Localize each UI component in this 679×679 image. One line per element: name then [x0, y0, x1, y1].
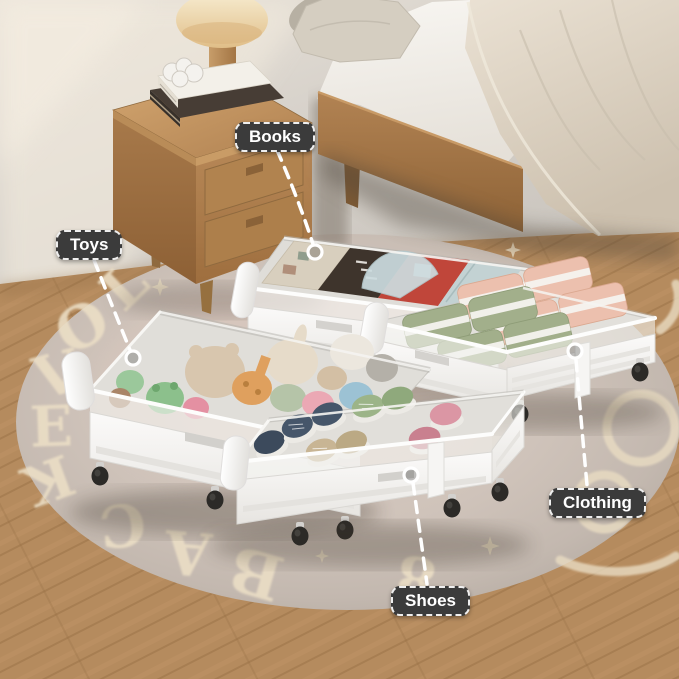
shoes-connector-dot	[404, 468, 418, 482]
books-label: Books	[235, 122, 315, 152]
books-connector-dot	[308, 245, 322, 259]
nightstand-leg	[200, 280, 213, 314]
toys-label: Toys	[56, 230, 122, 260]
product-photo-under-bed-storage: L O V E B A C K 8	[0, 0, 679, 679]
clothing-label: Clothing	[549, 488, 646, 518]
drawer-handle-tube	[219, 435, 251, 491]
shoes-label: Shoes	[391, 586, 470, 616]
toys-connector-dot	[126, 351, 140, 365]
clothing-connector-dot	[568, 344, 582, 358]
pillow	[293, 0, 420, 62]
scene-artwork: L O V E B A C K 8	[0, 0, 679, 679]
